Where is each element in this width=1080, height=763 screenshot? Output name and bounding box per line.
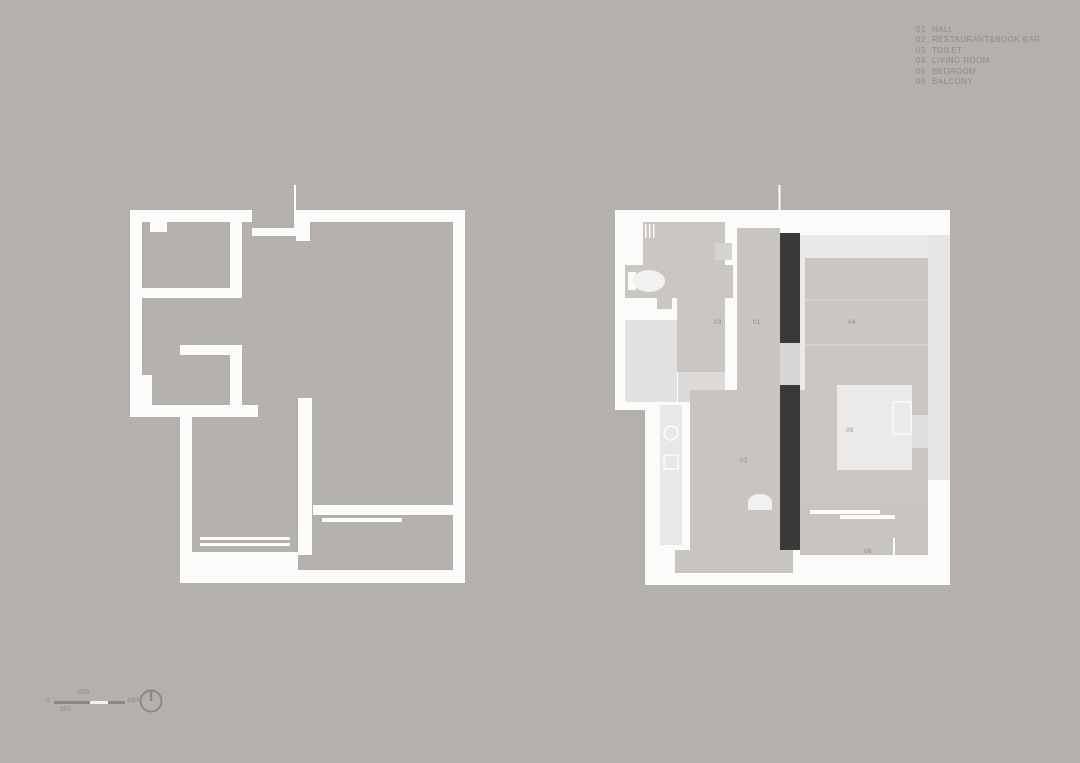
legend-label: BALCONY [932, 77, 973, 87]
room-label-balcony: 06 [864, 549, 872, 555]
original-floor-plan-drawing [130, 180, 465, 585]
legend-label: TOILET [932, 46, 962, 56]
legend-item: 05 BEDROOM [916, 67, 1040, 77]
room-legend: 01 HALL 02 RESTAURANT&BOOK BAR 03 TOILET… [916, 25, 1040, 87]
room-label-hall: 01 [753, 320, 761, 326]
legend-label: LIVING ROOM [932, 56, 990, 66]
scale-label-0: 0 [46, 697, 50, 704]
room-label-restaurant: 02 [740, 458, 748, 464]
legend-number: 03 [916, 46, 932, 56]
legend-item: 04 LIVING ROOM [916, 56, 1040, 66]
legend-number: 05 [916, 67, 932, 77]
legend-item: 06 BALCONY [916, 77, 1040, 87]
legend-number: 01 [916, 25, 932, 35]
legend-label: RESTAURANT&BOOK BAR [932, 35, 1040, 45]
original-floor-plan [130, 180, 465, 585]
room-label-toilet: 03 [714, 320, 722, 326]
scale-segment [90, 701, 108, 704]
room-label-living: 04 [848, 320, 856, 326]
proposed-floor-plan-drawing: 03 01 04 05 02 06 [615, 180, 950, 585]
scale-segment [108, 701, 125, 704]
legend-item: 03 TOILET [916, 46, 1040, 56]
legend-label: BEDROOM [932, 67, 976, 77]
proposed-floor-plan: 03 01 04 05 02 06 [615, 180, 950, 585]
room-label-bedroom: 05 [846, 428, 854, 434]
drawing-sheet: 01 HALL 02 RESTAURANT&BOOK BAR 03 TOILET… [0, 0, 1080, 763]
legend-label: HALL [932, 25, 954, 35]
legend-item: 01 HALL [916, 25, 1040, 35]
legend-number: 02 [916, 35, 932, 45]
north-arrow-icon [138, 688, 164, 714]
legend-item: 02 RESTAURANT&BOOK BAR [916, 35, 1040, 45]
legend-number: 06 [916, 77, 932, 87]
scale-segment [54, 701, 90, 704]
scale-label-250: 250 [60, 706, 71, 713]
legend-number: 04 [916, 56, 932, 66]
scale-label-500: 500 [78, 689, 89, 696]
